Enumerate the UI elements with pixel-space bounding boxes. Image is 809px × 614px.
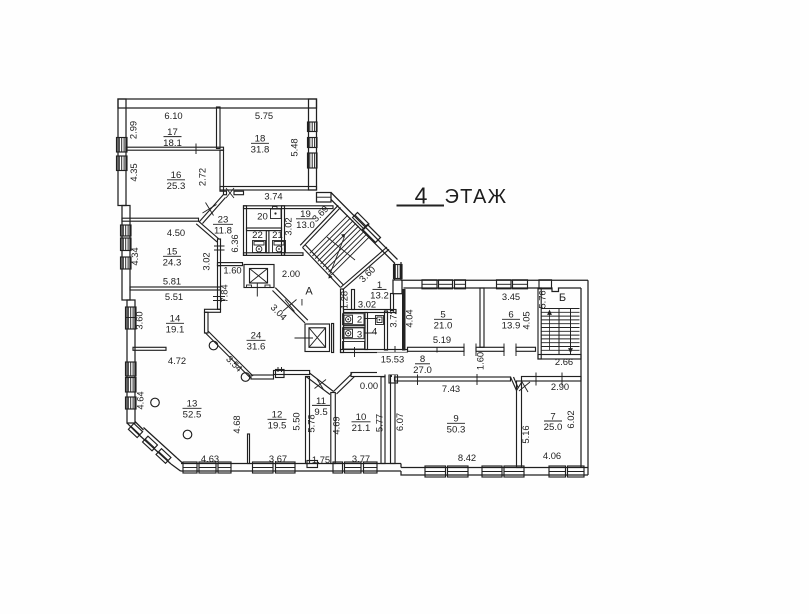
svg-text:1.60: 1.60: [223, 265, 241, 276]
svg-text:6.36: 6.36: [229, 234, 240, 252]
svg-text:I: I: [301, 298, 304, 309]
svg-text:5.77: 5.77: [374, 414, 385, 432]
svg-text:7.84: 7.84: [219, 284, 230, 302]
svg-text:2.66: 2.66: [555, 356, 573, 367]
svg-text:2.72: 2.72: [197, 168, 208, 186]
svg-text:52.5: 52.5: [183, 410, 202, 421]
svg-text:3.77: 3.77: [352, 453, 370, 464]
svg-text:24.3: 24.3: [163, 258, 182, 269]
svg-text:Б: Б: [559, 292, 566, 304]
svg-text:4.35: 4.35: [128, 163, 139, 181]
svg-text:4.72: 4.72: [168, 355, 186, 366]
svg-text:5.75: 5.75: [255, 110, 273, 121]
svg-text:4: 4: [372, 327, 378, 338]
svg-text:1.28: 1.28: [339, 291, 350, 309]
svg-text:3.74: 3.74: [264, 191, 282, 202]
svg-text:21.1: 21.1: [352, 423, 371, 434]
svg-text:7.43: 7.43: [442, 383, 460, 394]
svg-text:3.72: 3.72: [388, 309, 399, 327]
svg-text:А: А: [305, 286, 313, 298]
svg-text:1.60: 1.60: [475, 352, 486, 370]
svg-text:19.5: 19.5: [268, 421, 287, 432]
svg-text:3.02: 3.02: [283, 217, 294, 235]
svg-text:2.99: 2.99: [128, 121, 139, 139]
svg-text:4.04: 4.04: [404, 309, 415, 327]
svg-text:31.6: 31.6: [247, 342, 266, 353]
svg-text:5.48: 5.48: [289, 138, 300, 156]
svg-text:3.67: 3.67: [269, 453, 287, 464]
svg-text:22: 22: [252, 230, 263, 241]
svg-text:31.8: 31.8: [251, 145, 270, 156]
svg-text:4.68: 4.68: [231, 415, 242, 433]
svg-text:2.90: 2.90: [551, 381, 569, 392]
svg-text:4.69: 4.69: [331, 416, 342, 434]
svg-text:19.1: 19.1: [166, 325, 185, 336]
svg-text:4.34: 4.34: [129, 247, 140, 265]
svg-text:4.50: 4.50: [167, 227, 185, 238]
svg-text:5.19: 5.19: [433, 334, 451, 345]
svg-text:3.60: 3.60: [134, 311, 145, 329]
svg-text:4.05: 4.05: [521, 311, 532, 329]
svg-text:3.02: 3.02: [358, 299, 376, 310]
svg-text:4.06: 4.06: [543, 450, 561, 461]
svg-text:2: 2: [357, 315, 362, 326]
svg-text:27.0: 27.0: [413, 365, 432, 376]
svg-text:25.3: 25.3: [167, 181, 186, 192]
svg-text:5.76: 5.76: [537, 290, 548, 308]
svg-text:6.02: 6.02: [565, 410, 576, 428]
svg-text:20: 20: [257, 212, 268, 223]
svg-text:50.3: 50.3: [447, 425, 466, 436]
svg-text:13.9: 13.9: [502, 321, 521, 332]
svg-text:4.63: 4.63: [201, 453, 219, 464]
svg-text:3.02: 3.02: [201, 252, 212, 270]
svg-text:21.0: 21.0: [434, 321, 453, 332]
svg-text:18.1: 18.1: [163, 138, 182, 149]
svg-text:5.81: 5.81: [163, 276, 181, 287]
svg-text:6.10: 6.10: [164, 110, 182, 121]
svg-text:1.75: 1.75: [312, 454, 330, 465]
svg-text:5.51: 5.51: [165, 291, 183, 302]
svg-text:21: 21: [272, 230, 283, 241]
svg-text:2.00: 2.00: [282, 268, 300, 279]
svg-text:ЭТАЖ: ЭТАЖ: [445, 186, 508, 208]
svg-text:3: 3: [357, 330, 362, 341]
svg-text:5.50: 5.50: [291, 412, 302, 430]
svg-text:0.00: 0.00: [360, 380, 378, 391]
svg-text:4.64: 4.64: [135, 391, 146, 409]
svg-text:25.0: 25.0: [544, 422, 563, 433]
svg-text:13.0: 13.0: [296, 220, 315, 231]
svg-text:5.78: 5.78: [306, 414, 317, 432]
svg-text:15.53: 15.53: [381, 354, 404, 365]
svg-text:8.42: 8.42: [458, 452, 476, 463]
svg-text:5.16: 5.16: [520, 425, 531, 443]
svg-text:6.07: 6.07: [394, 413, 405, 431]
svg-text:3.45: 3.45: [502, 291, 520, 302]
